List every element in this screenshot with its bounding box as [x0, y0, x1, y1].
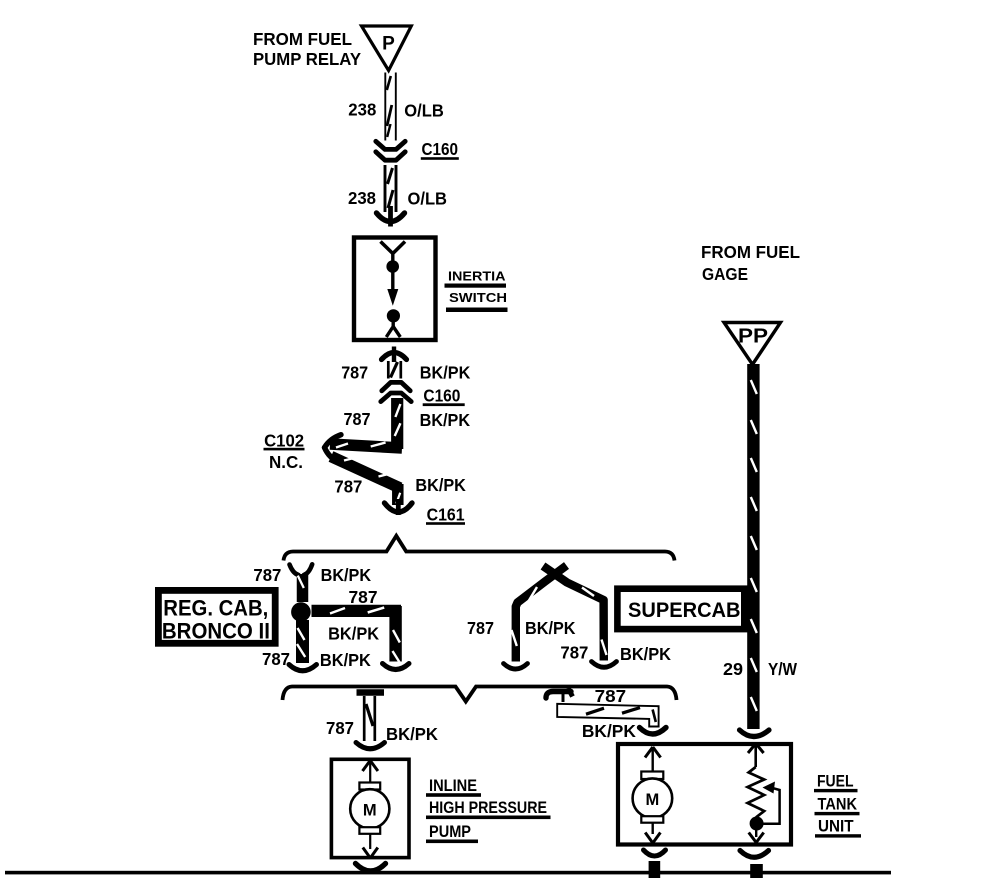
- svg-text:O/LB: O/LB: [404, 101, 444, 121]
- svg-text:787: 787: [326, 718, 354, 738]
- svg-text:BK/PK: BK/PK: [420, 362, 471, 382]
- svg-text:TANK: TANK: [818, 795, 858, 814]
- svg-text:SWITCH: SWITCH: [449, 290, 507, 305]
- svg-text:BK/PK: BK/PK: [620, 644, 671, 664]
- svg-text:FROM FUEL: FROM FUEL: [253, 29, 352, 49]
- svg-text:PUMP: PUMP: [429, 823, 471, 841]
- svg-text:787: 787: [253, 565, 281, 585]
- svg-text:SUPERCAB: SUPERCAB: [628, 598, 741, 622]
- svg-text:FUEL: FUEL: [817, 772, 854, 791]
- svg-text:BRONCO II: BRONCO II: [162, 619, 270, 644]
- svg-text:787: 787: [349, 587, 378, 607]
- svg-text:C160: C160: [423, 386, 460, 406]
- svg-text:238: 238: [348, 99, 376, 119]
- svg-text:BK/PK: BK/PK: [415, 475, 466, 495]
- svg-text:BK/PK: BK/PK: [320, 650, 371, 670]
- svg-text:787: 787: [344, 409, 371, 429]
- svg-text:BK/PK: BK/PK: [321, 565, 372, 585]
- svg-text:INERTIA: INERTIA: [448, 269, 506, 284]
- svg-text:787: 787: [467, 618, 494, 638]
- svg-text:C160: C160: [422, 139, 459, 159]
- svg-text:P: P: [382, 34, 395, 55]
- svg-text:787: 787: [595, 686, 627, 706]
- svg-text:787: 787: [341, 362, 368, 382]
- svg-text:PUMP RELAY: PUMP RELAY: [253, 49, 361, 69]
- svg-text:787: 787: [560, 643, 588, 663]
- svg-text:BK/PK: BK/PK: [386, 724, 438, 744]
- svg-text:C161: C161: [427, 504, 465, 524]
- svg-text:UNIT: UNIT: [818, 817, 854, 836]
- svg-text:BK/PK: BK/PK: [328, 623, 379, 643]
- svg-text:M: M: [363, 801, 377, 819]
- svg-text:Y/W: Y/W: [768, 659, 797, 679]
- svg-text:N.C.: N.C.: [269, 452, 303, 472]
- svg-text:29: 29: [723, 659, 743, 679]
- svg-text:FROM FUEL: FROM FUEL: [701, 242, 800, 262]
- svg-text:238: 238: [348, 188, 376, 208]
- svg-text:BK/PK: BK/PK: [420, 410, 471, 430]
- svg-text:REG. CAB,: REG. CAB,: [163, 596, 268, 621]
- svg-text:C102: C102: [264, 430, 304, 450]
- svg-text:M: M: [646, 791, 660, 809]
- svg-text:INLINE: INLINE: [429, 777, 477, 795]
- svg-text:GAGE: GAGE: [702, 264, 748, 284]
- svg-text:O/LB: O/LB: [408, 188, 448, 208]
- svg-text:787: 787: [334, 476, 362, 496]
- svg-text:BK/PK: BK/PK: [525, 618, 576, 638]
- svg-text:BK/PK: BK/PK: [582, 721, 636, 741]
- svg-text:787: 787: [262, 649, 290, 669]
- svg-text:PP: PP: [738, 325, 768, 348]
- svg-text:HIGH PRESSURE: HIGH PRESSURE: [429, 799, 547, 817]
